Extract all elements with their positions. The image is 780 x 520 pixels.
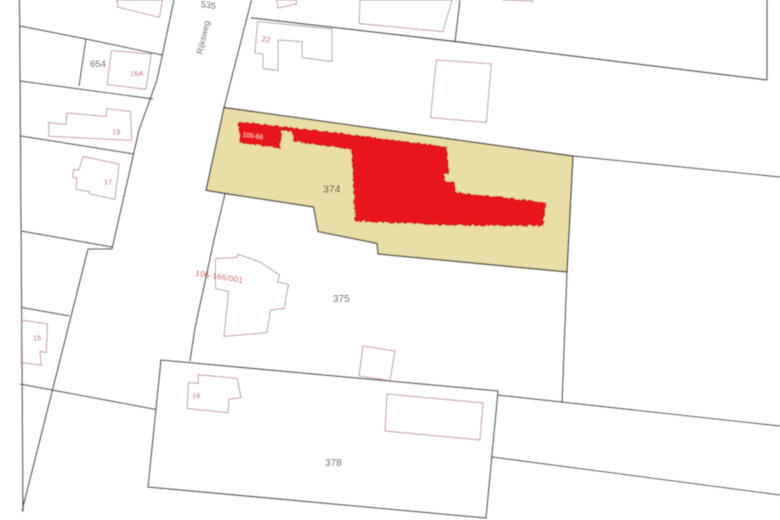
- svg-text:378: 378: [325, 458, 342, 469]
- svg-text:18: 18: [192, 391, 200, 400]
- svg-text:16A: 16A: [130, 69, 143, 78]
- svg-text:374: 374: [323, 184, 341, 196]
- svg-text:19: 19: [112, 128, 120, 137]
- svg-text:375: 375: [333, 294, 350, 305]
- svg-text:15: 15: [33, 334, 41, 343]
- svg-text:17: 17: [104, 178, 112, 187]
- svg-text:654: 654: [90, 59, 106, 70]
- svg-text:22: 22: [261, 35, 272, 45]
